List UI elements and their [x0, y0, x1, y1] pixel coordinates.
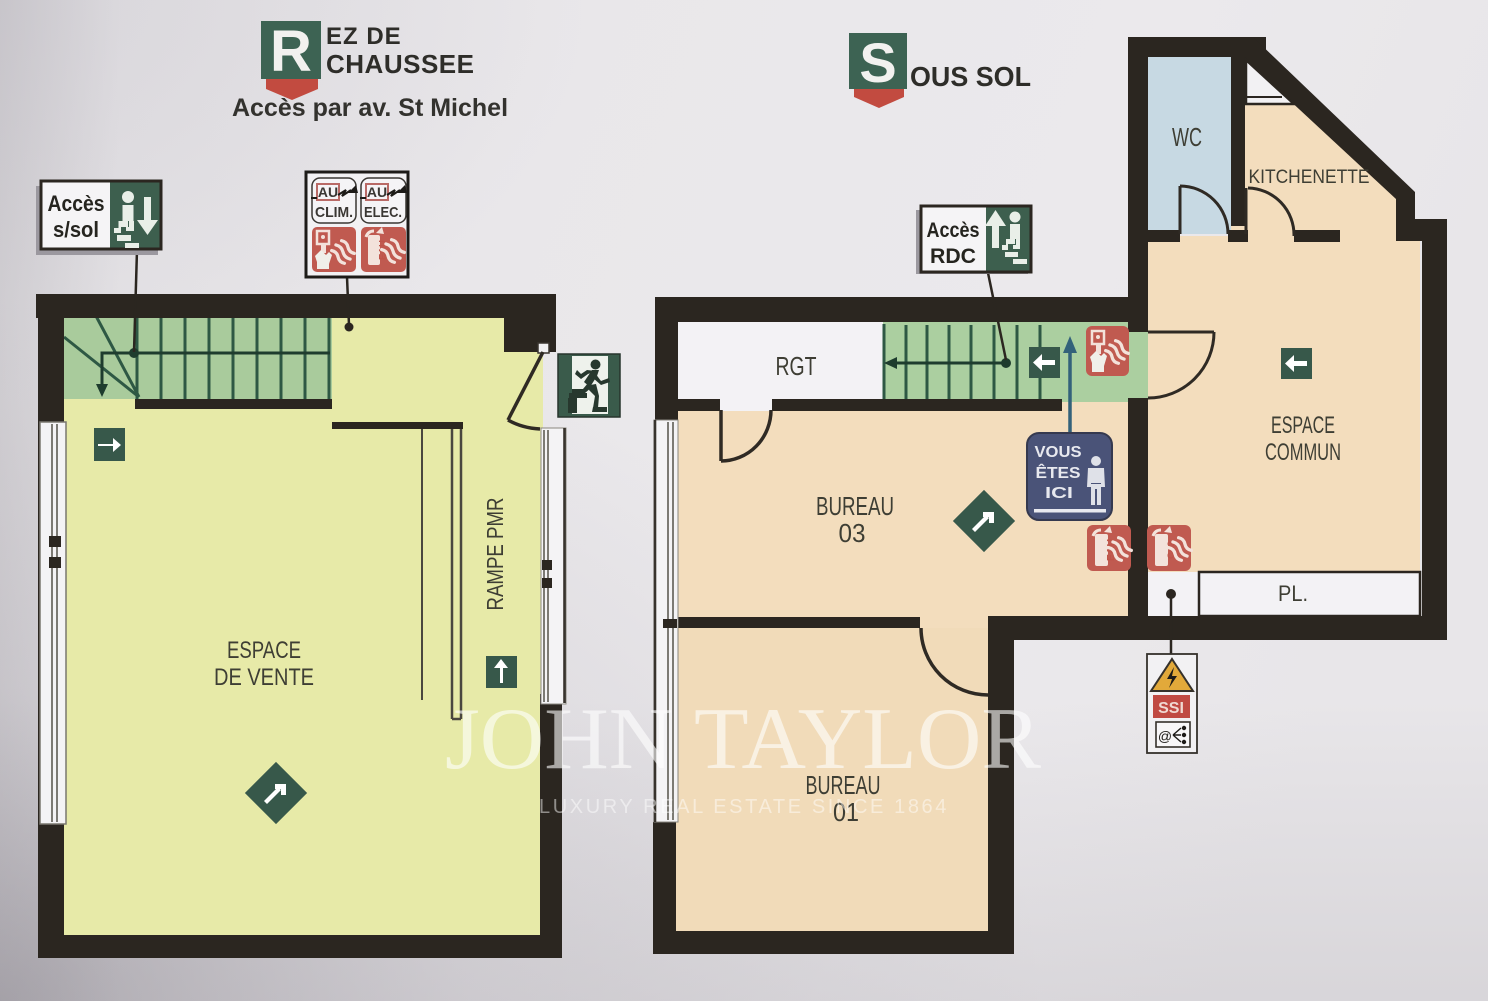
svg-text:ELEC.: ELEC.	[364, 204, 402, 221]
svg-text:AU: AU	[367, 184, 387, 200]
svg-text:RGT: RGT	[776, 351, 817, 381]
svg-text:JOHN TAYLOR: JOHN TAYLOR	[445, 691, 1041, 788]
svg-text:VOUS: VOUS	[1035, 444, 1082, 461]
svg-text:SSI: SSI	[1158, 700, 1184, 717]
svg-text:PL.: PL.	[1278, 581, 1308, 606]
svg-text:EZ DE: EZ DE	[326, 23, 402, 50]
svg-text:LUXURY REAL ESTATE SINCE 1864: LUXURY REAL ESTATE SINCE 1864	[539, 796, 949, 818]
svg-text:s/sol: s/sol	[53, 217, 99, 242]
svg-text:KITCHENETTE: KITCHENETTE	[1249, 166, 1370, 188]
svg-text:@: @	[1158, 728, 1172, 744]
svg-text:AU: AU	[318, 184, 338, 200]
svg-text:DE VENTE: DE VENTE	[214, 664, 314, 691]
svg-text:03: 03	[839, 518, 866, 548]
svg-text:ESPACE: ESPACE	[1271, 412, 1335, 439]
svg-text:CHAUSSEE: CHAUSSEE	[326, 49, 474, 79]
svg-text:RDC: RDC	[930, 245, 976, 268]
svg-text:S: S	[859, 31, 896, 94]
svg-text:Accès: Accès	[48, 191, 105, 216]
svg-text:BUREAU: BUREAU	[816, 491, 894, 521]
svg-text:ESPACE: ESPACE	[227, 637, 301, 664]
svg-text:ÊTES: ÊTES	[1036, 463, 1081, 482]
svg-text:CLIM.: CLIM.	[315, 204, 353, 221]
svg-text:ICI: ICI	[1045, 485, 1073, 502]
svg-text:R: R	[270, 19, 312, 84]
svg-text:Accès: Accès	[927, 219, 980, 242]
svg-text:OUS SOL: OUS SOL	[910, 61, 1031, 92]
svg-text:Accès par av. St Michel: Accès par av. St Michel	[232, 94, 508, 122]
svg-text:COMMUN: COMMUN	[1265, 439, 1341, 466]
svg-text:WC: WC	[1172, 122, 1202, 152]
svg-text:RAMPE PMR: RAMPE PMR	[482, 498, 508, 611]
